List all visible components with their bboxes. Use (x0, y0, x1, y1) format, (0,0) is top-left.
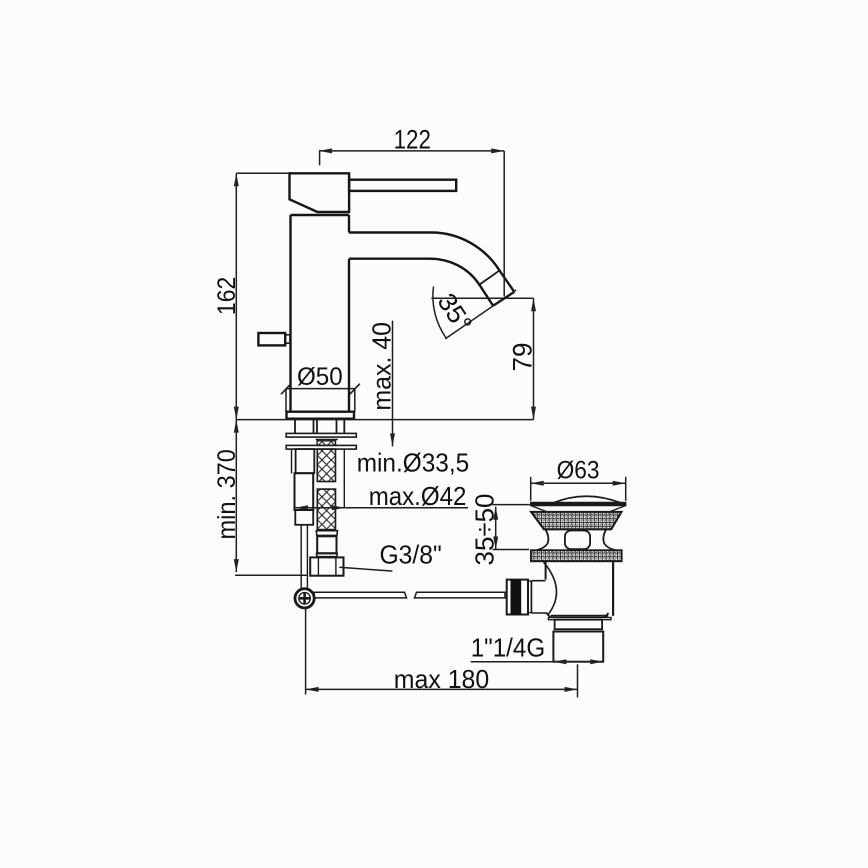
svg-text:Ø50: Ø50 (297, 363, 343, 391)
svg-text:162: 162 (213, 277, 241, 315)
svg-text:79: 79 (508, 343, 538, 372)
svg-text:Ø63: Ø63 (557, 457, 600, 485)
svg-text:min. 370: min. 370 (213, 449, 241, 539)
svg-text:1"1/4G: 1"1/4G (471, 633, 546, 663)
svg-text:max.Ø42: max.Ø42 (369, 481, 467, 511)
svg-text:min.Ø33,5: min.Ø33,5 (357, 448, 470, 478)
svg-text:max 180: max 180 (394, 664, 489, 694)
svg-text:35°: 35° (432, 288, 479, 338)
svg-text:max. 40: max. 40 (367, 322, 397, 411)
svg-text:G3/8": G3/8" (380, 539, 442, 569)
svg-text:122: 122 (394, 124, 431, 154)
svg-text:35÷50: 35÷50 (470, 494, 500, 566)
